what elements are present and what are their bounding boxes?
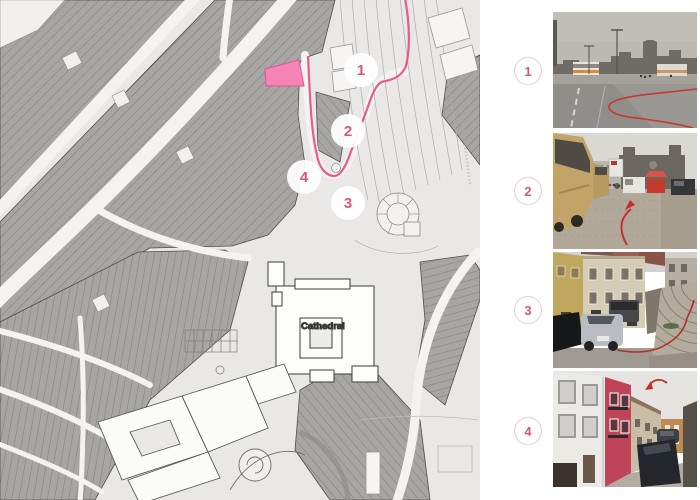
- map-marker-2: 2: [331, 114, 365, 148]
- map-marker-1: 1: [344, 53, 378, 87]
- circular-ramp: [377, 193, 420, 236]
- photo-1-road-with-buses-near-cathedral: [553, 12, 697, 128]
- photo-badge-2: 2: [514, 177, 542, 205]
- svg-text:2: 2: [344, 123, 352, 140]
- city-map: Cathedral: [0, 0, 480, 500]
- cathedral-label: Cathedral: [301, 321, 345, 332]
- map-marker-3: 3: [331, 186, 365, 220]
- svg-text:4: 4: [300, 169, 309, 186]
- photo-badge-1: 1: [514, 57, 542, 85]
- photo-badge-4: 4: [514, 417, 542, 445]
- photo-badge-3: 3: [514, 296, 542, 324]
- photo-3-street-parked-cars-stone-steps: [553, 252, 697, 368]
- photo-4-narrow-street-red-house: [553, 371, 697, 487]
- svg-text:1: 1: [357, 62, 365, 79]
- figure-route-map-with-photos: Cathedral: [0, 0, 700, 500]
- photo-2-tour-bus-on-cobbled-square: [553, 133, 697, 249]
- map-marker-4: 4: [287, 160, 321, 194]
- svg-text:3: 3: [344, 195, 352, 212]
